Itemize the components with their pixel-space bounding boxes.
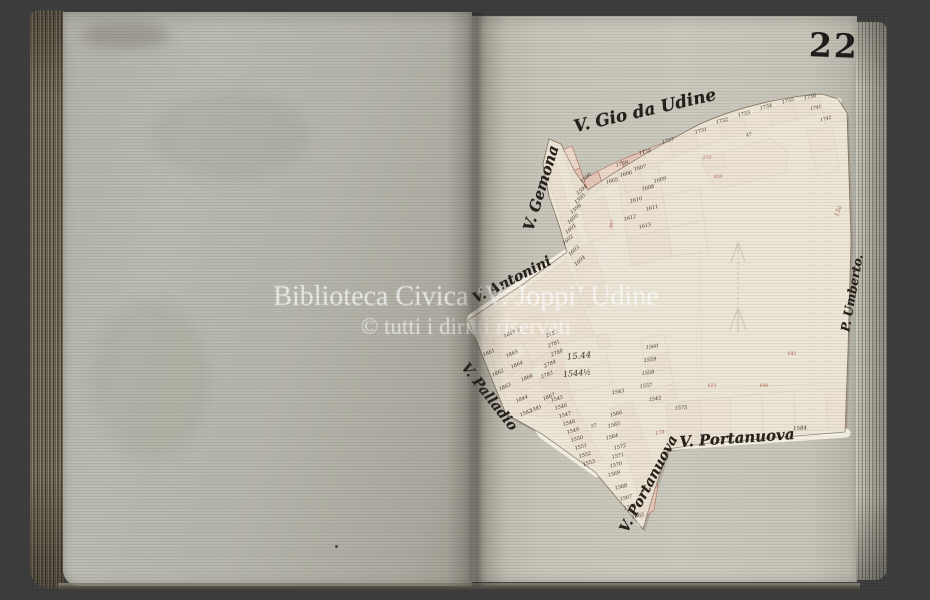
book-gutter-shadow	[446, 12, 506, 586]
page-number: 22	[808, 25, 859, 66]
photo-of-open-atlas: V. Gio da UdineV. GemonaV. AntoniniV. Pa…	[0, 0, 930, 600]
